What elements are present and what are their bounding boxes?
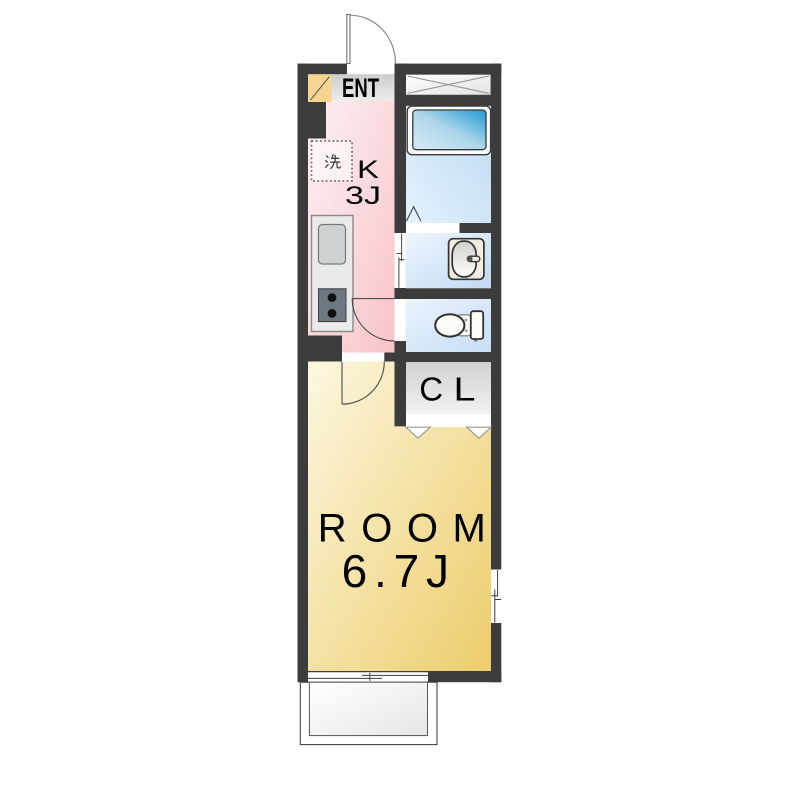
svg-text:C: C: [419, 370, 443, 407]
svg-text:3J: 3J: [345, 182, 381, 210]
svg-text:K: K: [357, 156, 379, 184]
svg-text:ENT: ENT: [342, 73, 379, 103]
svg-text:L: L: [454, 370, 476, 407]
svg-text:6.7J: 6.7J: [342, 545, 449, 597]
